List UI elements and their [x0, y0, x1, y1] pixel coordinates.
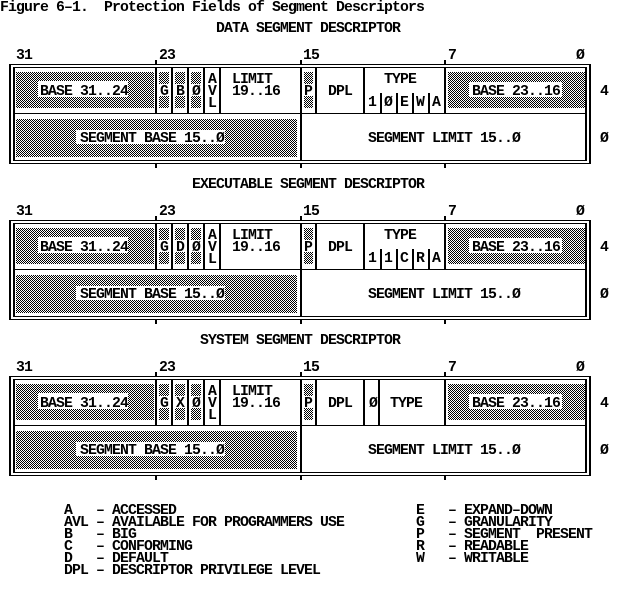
svg-text:TYPE: TYPE: [384, 228, 417, 244]
svg-text:L: L: [208, 408, 217, 424]
svg-text:31: 31: [16, 360, 33, 376]
svg-text:DPL: DPL: [328, 396, 353, 412]
svg-text:Ø: Ø: [576, 204, 585, 220]
svg-text:Ø: Ø: [192, 396, 201, 412]
svg-text:BASE 31..24: BASE 31..24: [40, 396, 129, 412]
svg-text:19..16: 19..16: [232, 84, 281, 100]
svg-text:23: 23: [159, 204, 176, 220]
svg-text:G: G: [160, 240, 169, 256]
svg-text:TYPE: TYPE: [390, 396, 423, 412]
svg-text:P: P: [304, 240, 313, 256]
svg-text:W – WRITABLE: W – WRITABLE: [416, 551, 529, 567]
svg-text:23: 23: [159, 48, 176, 64]
svg-text:SEGMENT BASE 15..Ø: SEGMENT BASE 15..Ø: [80, 287, 225, 303]
svg-text:Ø: Ø: [576, 48, 585, 64]
svg-text:1: 1: [368, 95, 377, 111]
svg-text:X: X: [176, 396, 185, 412]
svg-text:4: 4: [600, 396, 609, 412]
svg-text:Ø: Ø: [192, 84, 201, 100]
svg-text:SEGMENT LIMIT 15..Ø: SEGMENT LIMIT 15..Ø: [368, 131, 521, 147]
svg-text:Ø: Ø: [384, 95, 393, 111]
svg-text:Ø: Ø: [369, 396, 378, 412]
svg-text:15: 15: [303, 48, 320, 64]
svg-text:BASE 23..16: BASE 23..16: [472, 84, 561, 100]
svg-text:R: R: [416, 251, 425, 267]
svg-text:1: 1: [368, 251, 377, 267]
svg-text:BASE 23..16: BASE 23..16: [472, 240, 561, 256]
svg-text:W: W: [416, 95, 425, 111]
svg-text:A: A: [432, 251, 441, 267]
svg-text:31: 31: [16, 48, 33, 64]
svg-text:19..16: 19..16: [232, 240, 281, 256]
svg-text:BASE 31..24: BASE 31..24: [40, 84, 129, 100]
svg-text:DPL: DPL: [328, 240, 353, 256]
svg-text:7: 7: [448, 48, 456, 64]
svg-text:Ø: Ø: [600, 131, 609, 147]
svg-text:SEGMENT LIMIT 15..Ø: SEGMENT LIMIT 15..Ø: [368, 287, 521, 303]
svg-text:15: 15: [303, 204, 320, 220]
svg-text:DATA SEGMENT DESCRIPTOR: DATA SEGMENT DESCRIPTOR: [216, 21, 401, 37]
svg-text:BASE 31..24: BASE 31..24: [40, 240, 129, 256]
svg-text:Figure 6–1. Protection Fields: Figure 6–1. Protection Fields of Segment…: [0, 0, 424, 16]
svg-text:Ø: Ø: [192, 240, 201, 256]
svg-text:31: 31: [16, 204, 33, 220]
svg-text:B: B: [176, 84, 185, 100]
svg-text:SEGMENT BASE 15..Ø: SEGMENT BASE 15..Ø: [80, 443, 225, 459]
svg-text:TYPE: TYPE: [384, 72, 417, 88]
svg-text:4: 4: [600, 240, 609, 256]
svg-text:7: 7: [448, 360, 456, 376]
svg-text:L: L: [208, 252, 217, 268]
svg-text:23: 23: [159, 360, 176, 376]
svg-text:E: E: [400, 95, 409, 111]
svg-text:DPL: DPL: [328, 84, 353, 100]
svg-text:C: C: [400, 251, 409, 267]
svg-text:P: P: [304, 396, 313, 412]
svg-text:15: 15: [303, 360, 320, 376]
svg-text:BASE 23..16: BASE 23..16: [472, 396, 561, 412]
svg-text:L: L: [208, 96, 217, 112]
svg-text:SEGMENT BASE 15..Ø: SEGMENT BASE 15..Ø: [80, 131, 225, 147]
svg-text:7: 7: [448, 204, 456, 220]
svg-text:P: P: [304, 84, 313, 100]
svg-text:A: A: [432, 95, 441, 111]
svg-text:DPL – DESCRIPTOR PRIVILEGE LEV: DPL – DESCRIPTOR PRIVILEGE LEVEL: [64, 563, 321, 579]
svg-text:D: D: [176, 240, 185, 256]
svg-text:G: G: [160, 396, 169, 412]
svg-text:EXECUTABLE SEGMENT DESCRIPTOR: EXECUTABLE SEGMENT DESCRIPTOR: [192, 177, 425, 193]
svg-text:SYSTEM SEGMENT DESCRIPTOR: SYSTEM SEGMENT DESCRIPTOR: [200, 333, 401, 349]
svg-text:SEGMENT LIMIT 15..Ø: SEGMENT LIMIT 15..Ø: [368, 443, 521, 459]
svg-text:Ø: Ø: [600, 287, 609, 303]
svg-text:19..16: 19..16: [232, 396, 281, 412]
svg-text:1: 1: [384, 251, 393, 267]
svg-text:4: 4: [600, 84, 609, 100]
svg-text:G: G: [160, 84, 169, 100]
svg-text:Ø: Ø: [600, 443, 609, 459]
svg-text:Ø: Ø: [576, 360, 585, 376]
